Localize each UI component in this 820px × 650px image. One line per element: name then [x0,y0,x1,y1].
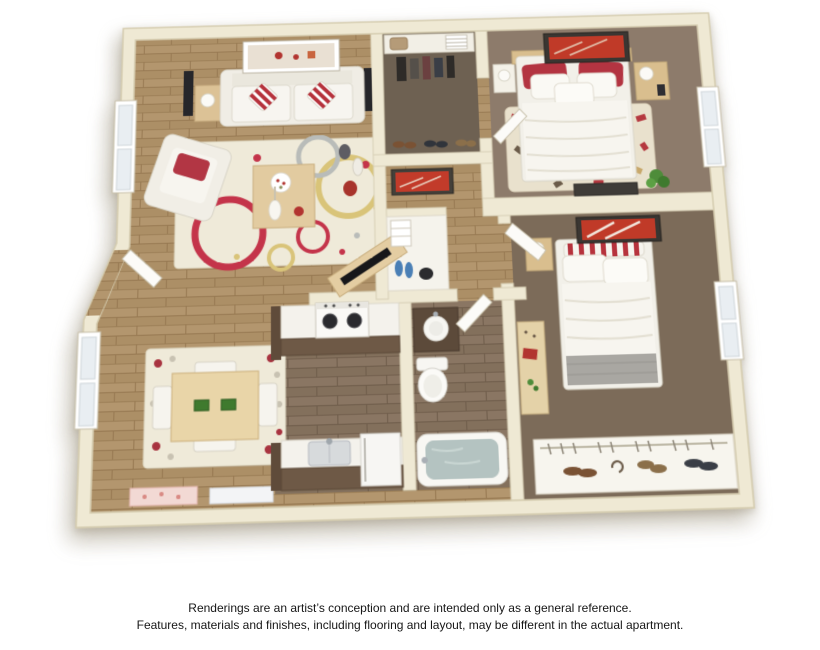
wall-closet-bedroom1-lower [480,138,494,198]
wall-linen-west [374,166,389,299]
dresser [574,182,638,195]
living-window [112,100,136,193]
disclaimer: Renderings are an artist’s conception an… [0,600,820,634]
dining-window [74,332,100,430]
bed-1 [512,48,641,182]
coffee-table [253,164,315,228]
lamp-right [639,67,654,80]
linen-shelves [391,220,412,246]
phone [657,84,666,95]
dining-chair-east [258,383,277,426]
hall-art [391,168,453,195]
bedroom2-art [576,215,662,243]
bedroom2-closet [533,434,737,494]
toilet [417,357,449,402]
table-plant-1 [194,400,209,411]
desk [517,321,548,414]
red-book [522,348,537,360]
wall-closet-bedroom1-upper [475,31,489,78]
guitar-decor [269,200,281,220]
white-mat [210,486,273,503]
gray-blanket [566,353,658,385]
wall-living-closet [371,34,385,155]
dining-chair-west [152,386,172,429]
pink-mat [130,487,198,507]
refrigerator [360,433,401,486]
dining-table [171,371,259,442]
wall-bedroom2-west-top [498,215,510,223]
folded-towels [446,35,468,49]
bathtub [417,432,509,487]
disclaimer-line-1: Renderings are an artist’s conception an… [0,600,820,617]
speaker-left [183,71,193,116]
bed-2 [555,237,662,389]
sink [308,438,350,466]
cabinet-north [281,336,400,356]
disclaimer-line-2: Features, materials and finishes, includ… [0,617,820,634]
speaker-right [364,68,373,111]
bedroom1-art [543,32,629,64]
page: Renderings are an artist’s conception an… [0,0,820,650]
table-lamp-left [201,94,215,108]
cabinet-cap-south [271,443,282,491]
floor-plan-svg [43,5,792,549]
living-art [243,39,340,73]
sofa [220,66,365,126]
lamp-left [498,70,510,81]
bag [390,37,408,49]
cabinet-cap-north [271,306,281,360]
wall-bath-north [493,287,526,300]
table-plant-2 [221,399,236,410]
floor-plan-rendering [43,5,792,549]
stove [316,302,369,338]
